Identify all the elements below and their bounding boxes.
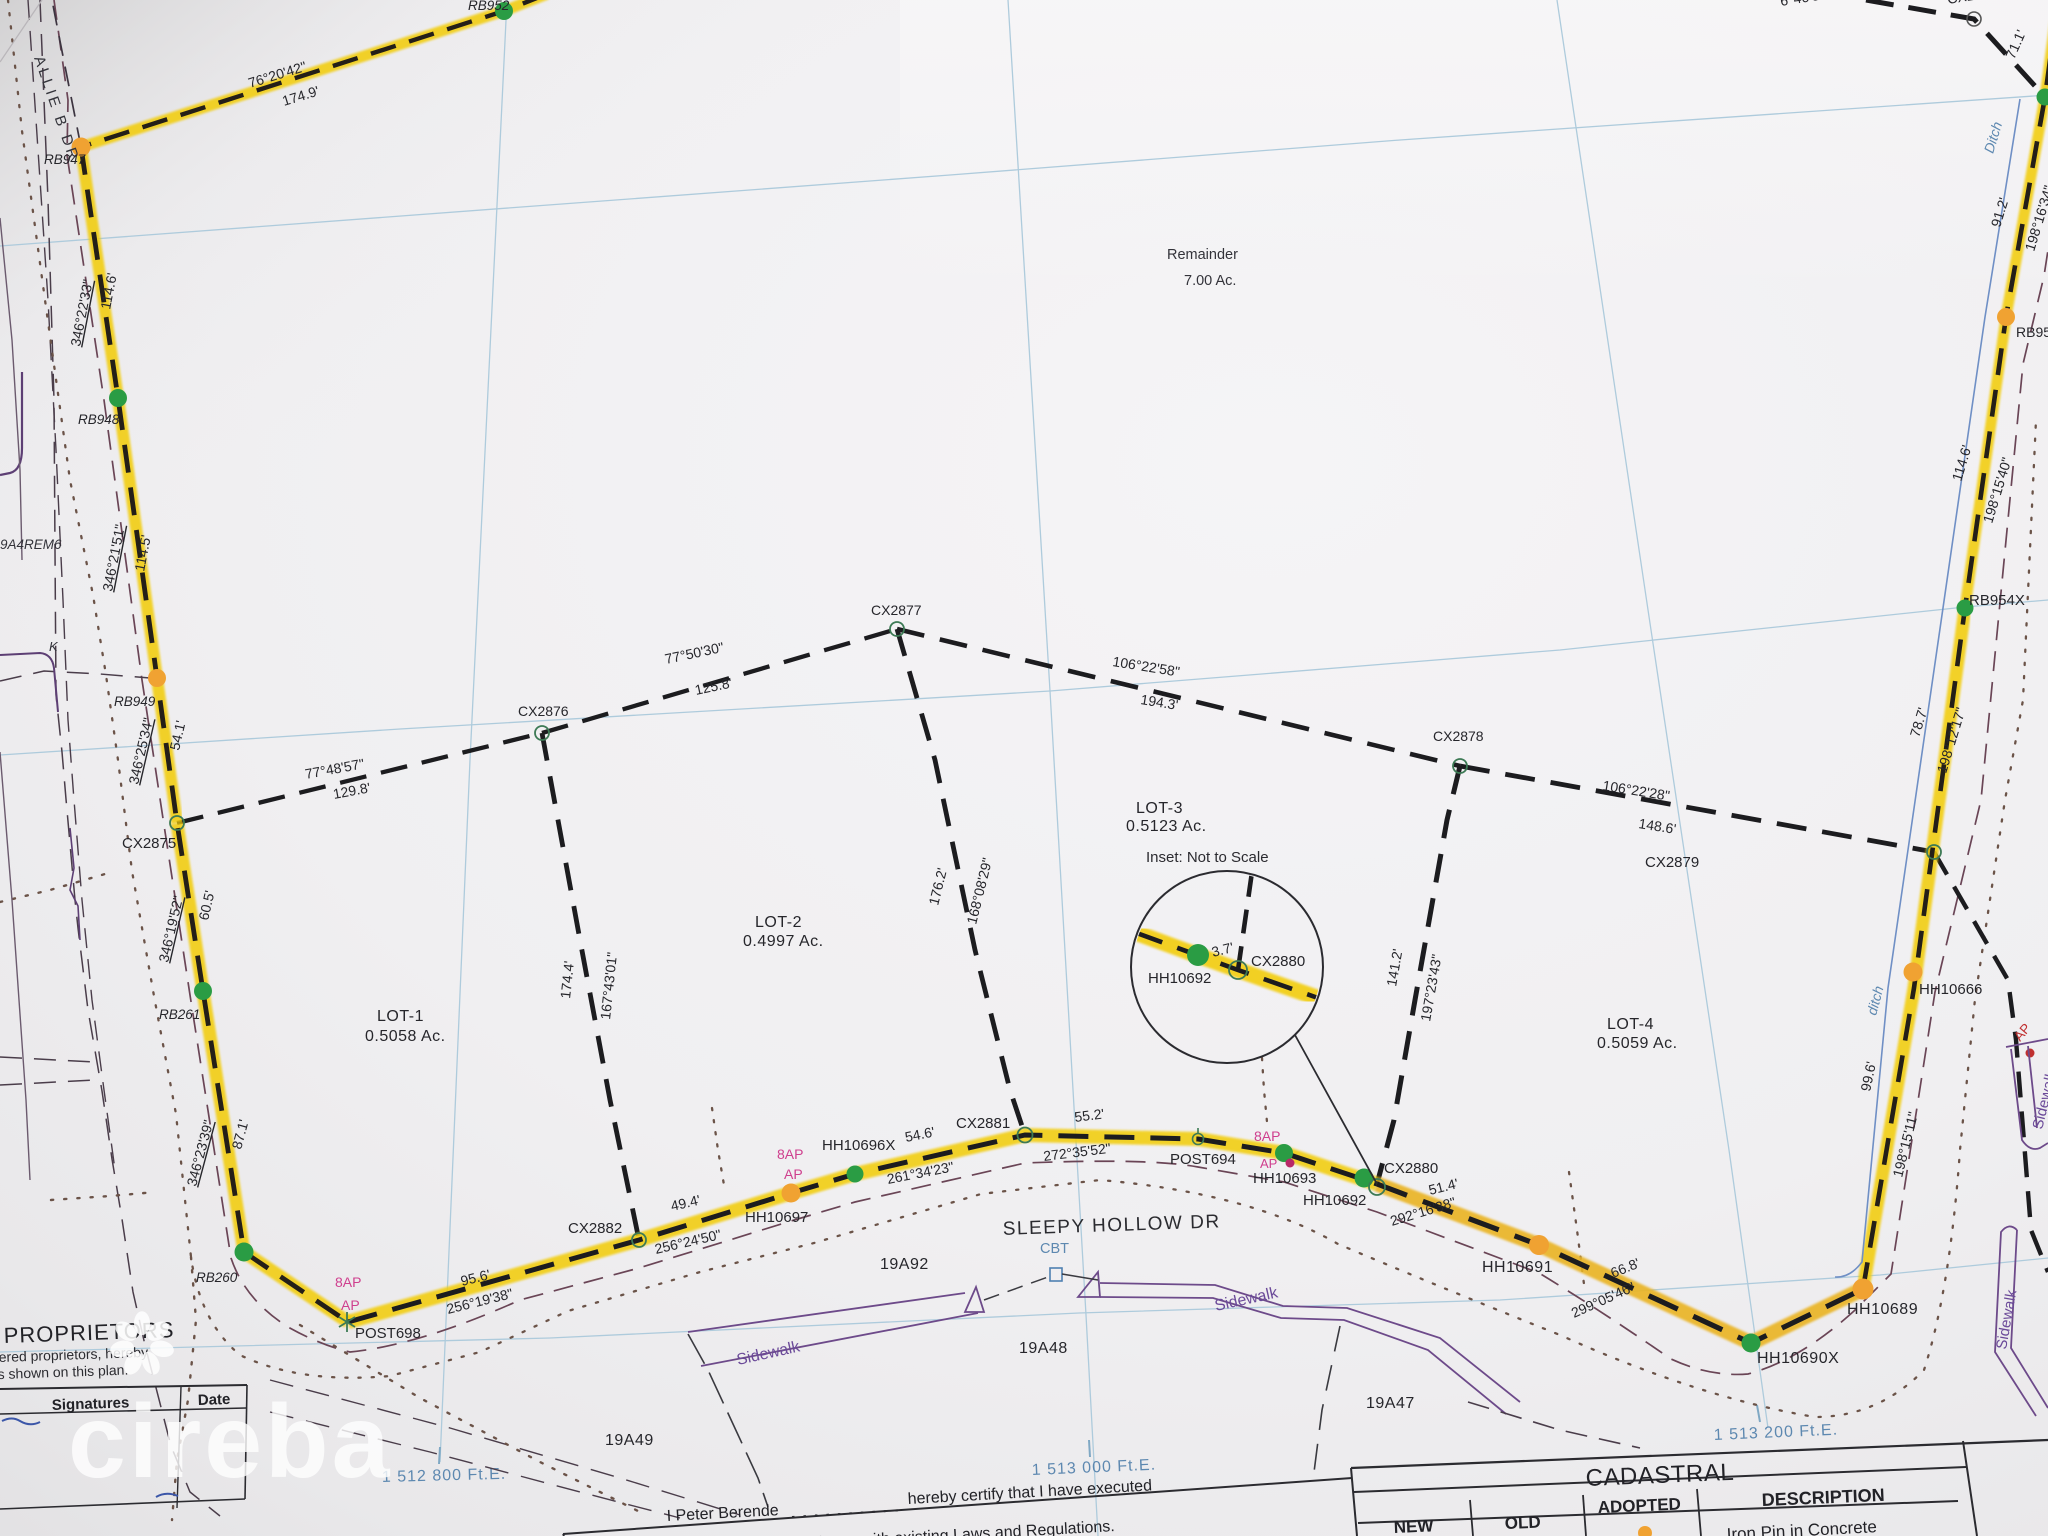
- svg-text:CX2876: CX2876: [518, 703, 569, 719]
- svg-text:OLD: OLD: [1504, 1513, 1541, 1533]
- svg-text:CX2878: CX2878: [1433, 728, 1484, 744]
- svg-text:RB260: RB260: [196, 1270, 238, 1285]
- svg-text:0.4997 Ac.: 0.4997 Ac.: [743, 933, 824, 950]
- svg-text:8AP: 8AP: [777, 1146, 803, 1162]
- svg-text:HH10691: HH10691: [1482, 1259, 1553, 1276]
- svg-text:CX2880: CX2880: [1384, 1160, 1438, 1177]
- svg-text:Inset: Not to Scale: Inset: Not to Scale: [1146, 849, 1269, 866]
- svg-text:AP: AP: [341, 1297, 360, 1313]
- svg-text:RB95: RB95: [2016, 324, 2048, 340]
- svg-text:HH10697: HH10697: [745, 1209, 808, 1226]
- svg-text:HH10696X: HH10696X: [822, 1137, 895, 1154]
- svg-text:RB947: RB947: [44, 152, 86, 167]
- svg-text:LOT-2: LOT-2: [755, 914, 802, 931]
- svg-text:0.5058 Ac.: 0.5058 Ac.: [365, 1028, 446, 1045]
- svg-text:AP: AP: [1260, 1156, 1277, 1171]
- svg-text:19A49: 19A49: [605, 1432, 654, 1449]
- svg-text:CX2875: CX2875: [122, 835, 176, 852]
- svg-text:HH10692: HH10692: [1148, 970, 1211, 987]
- svg-text:cireba: cireba: [68, 1384, 392, 1500]
- svg-text:ADOPTED: ADOPTED: [1597, 1495, 1681, 1517]
- svg-text:CX2881: CX2881: [956, 1115, 1010, 1132]
- svg-text:19A47: 19A47: [1366, 1395, 1415, 1412]
- svg-text:LOT-1: LOT-1: [377, 1008, 424, 1025]
- svg-text:9A4REM6: 9A4REM6: [0, 537, 62, 552]
- svg-text:LOT-4: LOT-4: [1607, 1016, 1654, 1033]
- svg-text:0.5123 Ac.: 0.5123 Ac.: [1126, 818, 1207, 835]
- svg-text:POST694: POST694: [1170, 1151, 1236, 1168]
- svg-text:RB949: RB949: [114, 694, 156, 709]
- svg-text:HH10693: HH10693: [1253, 1170, 1316, 1187]
- svg-text:CX2880: CX2880: [1251, 953, 1305, 970]
- svg-text:HH10690X: HH10690X: [1757, 1350, 1839, 1367]
- svg-text:NEW: NEW: [1393, 1516, 1434, 1536]
- svg-text:0.5059 Ac.: 0.5059 Ac.: [1597, 1035, 1678, 1052]
- svg-text:HH10689: HH10689: [1847, 1301, 1918, 1318]
- svg-text:HH10692: HH10692: [1303, 1192, 1366, 1209]
- svg-text:8AP: 8AP: [335, 1274, 361, 1290]
- svg-text:AP: AP: [784, 1166, 803, 1182]
- svg-text:RB948: RB948: [78, 412, 120, 427]
- svg-text:CX2882: CX2882: [568, 1220, 622, 1237]
- svg-text:19A92: 19A92: [880, 1256, 929, 1273]
- svg-text:CBT: CBT: [1040, 1241, 1069, 1257]
- svg-text:RB952: RB952: [468, 0, 510, 13]
- svg-text:1 512 800 Ft.E.: 1 512 800 Ft.E.: [382, 1466, 507, 1486]
- svg-text:CX2879: CX2879: [1645, 854, 1699, 871]
- svg-text:19A48: 19A48: [1019, 1340, 1068, 1357]
- svg-text:7.00 Ac.: 7.00 Ac.: [1184, 273, 1236, 289]
- svg-text:HH10666: HH10666: [1919, 981, 1982, 998]
- svg-text:CX2877: CX2877: [871, 602, 922, 618]
- svg-text:POST698: POST698: [355, 1325, 421, 1342]
- svg-text:8AP: 8AP: [1254, 1128, 1280, 1144]
- svg-text:LOT-3: LOT-3: [1136, 800, 1183, 817]
- svg-text:K: K: [49, 639, 59, 654]
- svg-text:Remainder: Remainder: [1167, 247, 1238, 263]
- svg-text:RB954X: RB954X: [1969, 592, 2025, 609]
- svg-text:RB261: RB261: [159, 1007, 200, 1022]
